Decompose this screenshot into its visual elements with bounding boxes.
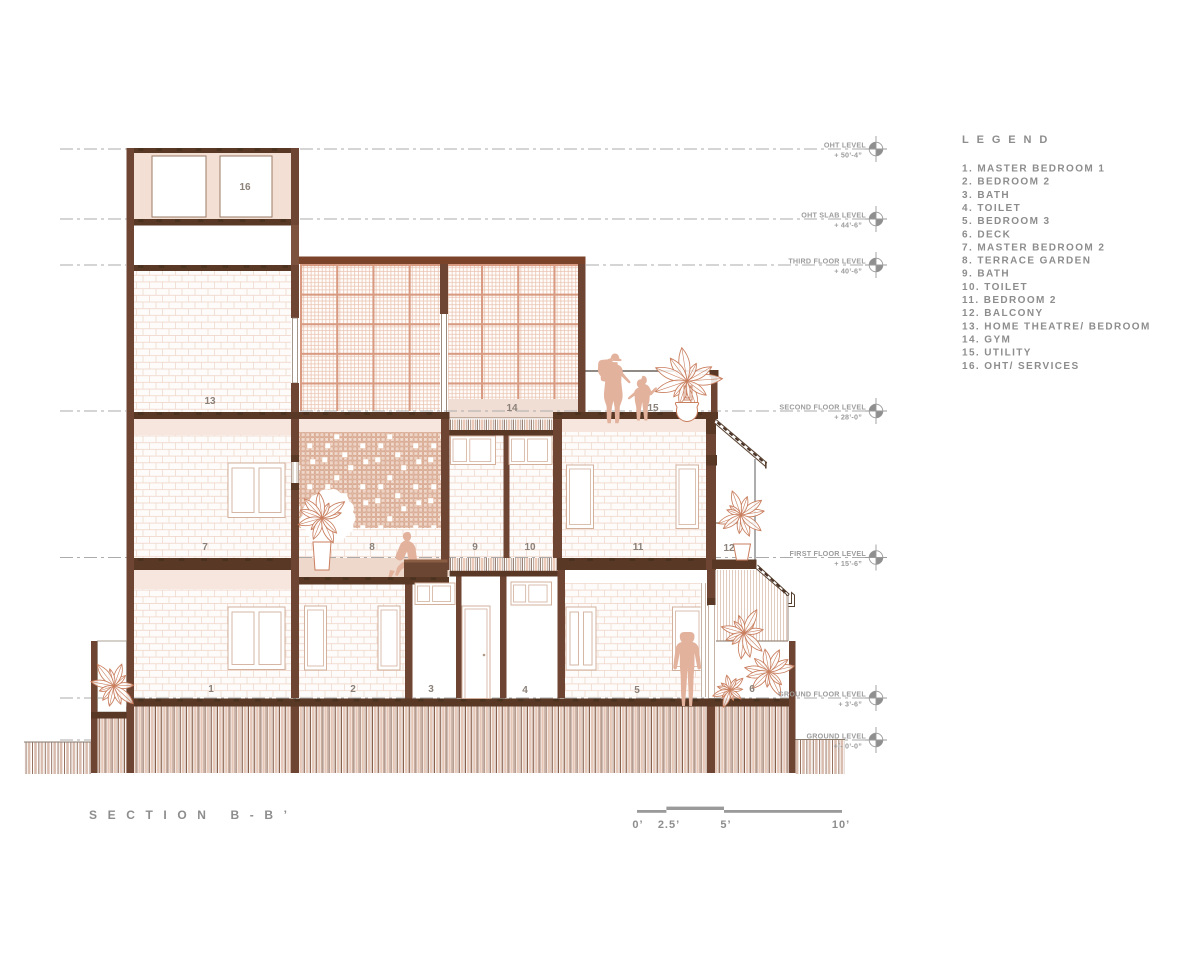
svg-text:FIRST FLOOR LEVEL: FIRST FLOOR LEVEL xyxy=(790,549,867,558)
svg-text:1: 1 xyxy=(208,684,214,695)
svg-text:+/- 0’-0”: +/- 0’-0” xyxy=(834,742,863,751)
svg-text:7: 7 xyxy=(202,542,208,553)
svg-text:14: 14 xyxy=(506,403,518,414)
svg-text:+ 15’-6”: + 15’-6” xyxy=(834,559,862,568)
svg-text:GROUND FLOOR LEVEL: GROUND FLOOR LEVEL xyxy=(778,690,866,699)
svg-text:1. MASTER BEDROOM 1: 1. MASTER BEDROOM 1 xyxy=(962,164,1105,175)
svg-text:2: 2 xyxy=(350,684,356,695)
svg-text:3: 3 xyxy=(428,684,434,695)
svg-text:0’: 0’ xyxy=(632,819,643,831)
svg-text:THIRD FLOOR LEVEL: THIRD FLOOR LEVEL xyxy=(788,257,866,266)
svg-text:12: 12 xyxy=(723,543,735,554)
svg-text:8: 8 xyxy=(369,542,375,553)
svg-text:+ 3’-6”: + 3’-6” xyxy=(838,700,862,709)
svg-text:13: 13 xyxy=(204,396,216,407)
svg-text:6: 6 xyxy=(749,684,755,695)
svg-text:12. BALCONY: 12. BALCONY xyxy=(962,308,1044,319)
svg-text:+ 50’-4”: + 50’-4” xyxy=(834,151,862,160)
svg-text:14. GYM: 14. GYM xyxy=(962,334,1011,345)
svg-text:2.5’: 2.5’ xyxy=(658,819,680,831)
svg-text:10: 10 xyxy=(524,542,536,553)
svg-text:9: 9 xyxy=(472,542,478,553)
svg-text:OHT LEVEL: OHT LEVEL xyxy=(824,141,867,150)
svg-text:8. TERRACE GARDEN: 8. TERRACE GARDEN xyxy=(962,256,1091,267)
svg-text:GROUND LEVEL: GROUND LEVEL xyxy=(806,732,866,741)
svg-text:16. OHT/ SERVICES: 16. OHT/ SERVICES xyxy=(962,361,1080,372)
svg-text:9. BATH: 9. BATH xyxy=(962,269,1010,280)
svg-text:2. BEDROOM 2: 2. BEDROOM 2 xyxy=(962,177,1050,188)
svg-text:3. BATH: 3. BATH xyxy=(962,190,1010,201)
svg-text:5: 5 xyxy=(634,685,640,696)
svg-text:16: 16 xyxy=(239,182,251,193)
svg-text:OHT SLAB LEVEL: OHT SLAB LEVEL xyxy=(801,211,866,220)
svg-text:+ 40’-6”: + 40’-6” xyxy=(834,267,862,276)
svg-text:11. BEDROOM 2: 11. BEDROOM 2 xyxy=(962,295,1057,306)
svg-text:SECTION B-B’: SECTION B-B’ xyxy=(89,808,298,822)
svg-text:5’: 5’ xyxy=(720,819,731,831)
svg-text:5. BEDROOM 3: 5. BEDROOM 3 xyxy=(962,216,1050,227)
svg-text:15: 15 xyxy=(647,403,659,414)
svg-text:4: 4 xyxy=(522,685,528,696)
svg-text:6. DECK: 6. DECK xyxy=(962,229,1011,240)
svg-text:7. MASTER BEDROOM 2: 7. MASTER BEDROOM 2 xyxy=(962,242,1105,253)
svg-text:10. TOILET: 10. TOILET xyxy=(962,282,1028,293)
svg-text:10’: 10’ xyxy=(832,819,850,831)
svg-text:4. TOILET: 4. TOILET xyxy=(962,203,1021,214)
svg-text:+ 44’-6”: + 44’-6” xyxy=(834,221,862,230)
svg-text:LEGEND: LEGEND xyxy=(962,134,1055,146)
svg-text:+ 28’-0”: + 28’-0” xyxy=(834,413,862,422)
svg-text:11: 11 xyxy=(633,542,644,553)
svg-text:13. HOME THEATRE/ BEDROOM: 13. HOME THEATRE/ BEDROOM xyxy=(962,321,1151,332)
svg-text:SECOND FLOOR LEVEL: SECOND FLOOR LEVEL xyxy=(779,403,866,412)
svg-text:15. UTILITY: 15. UTILITY xyxy=(962,348,1032,359)
